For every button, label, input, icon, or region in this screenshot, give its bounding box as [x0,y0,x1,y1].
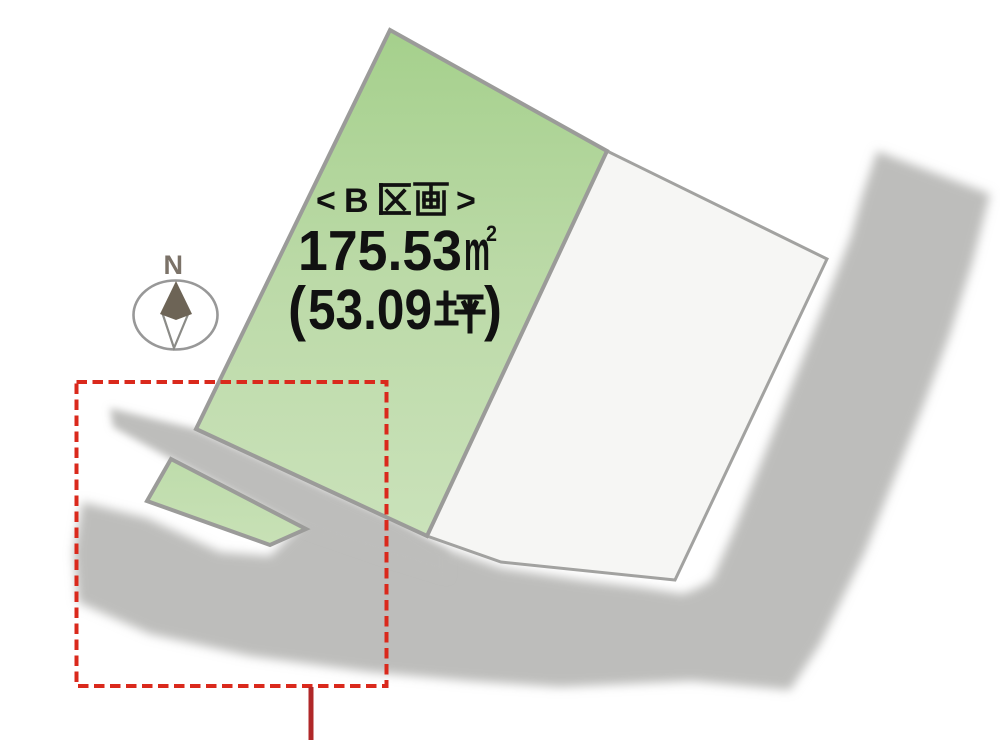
svg-text:175.53: 175.53 [298,219,462,283]
svg-text:N: N [164,250,184,280]
svg-text:(: ( [288,275,306,342]
svg-text:<: < [316,182,336,220]
svg-text:53.09: 53.09 [308,278,432,342]
svg-text:B: B [344,182,369,220]
svg-text:): ) [484,275,502,342]
svg-text:2: 2 [486,221,497,246]
svg-text:>: > [456,182,476,220]
